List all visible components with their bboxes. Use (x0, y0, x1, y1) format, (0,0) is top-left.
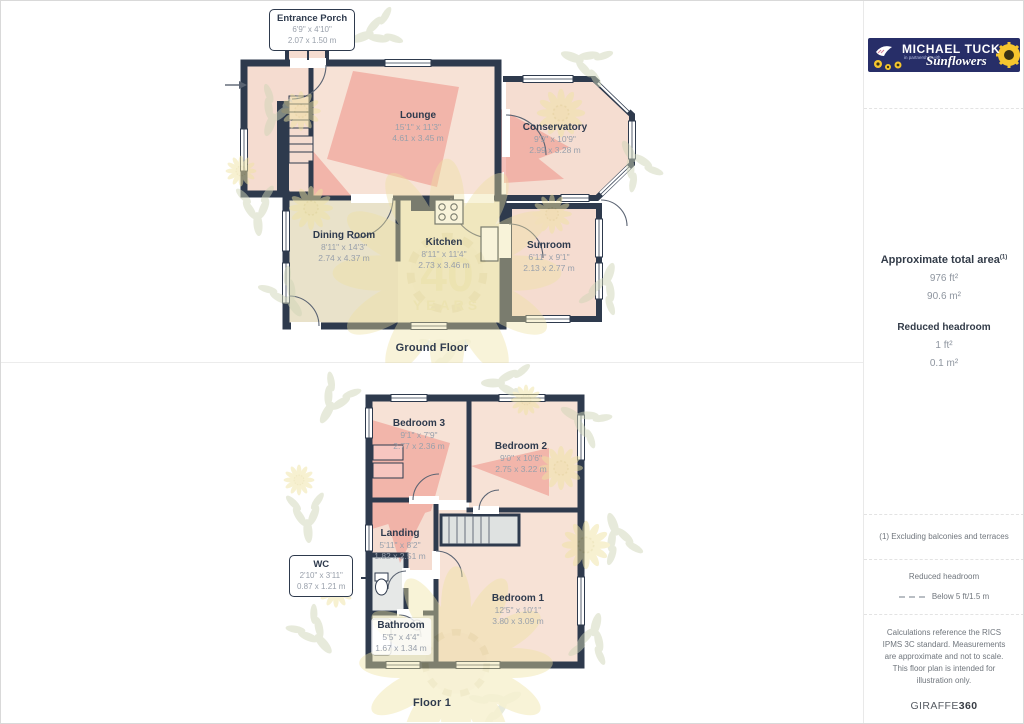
legend-section: Reduced headroom Below 5 ft/1.5 m (864, 560, 1024, 615)
entrance-porch-callout: Entrance Porch 6'9" x 4'10" 2.07 x 1.50 … (269, 9, 355, 51)
ground-floor-section: 40 YEARS Entrance Porch 6'9" x 4'10" 2.0… (1, 1, 863, 363)
room-label-sunroom: Sunroom 6'11" x 9'1" 2.13 x 2.77 m (523, 239, 575, 274)
callout-pointer (307, 51, 309, 60)
room-label-kitchen: Kitchen 8'11" x 11'4" 2.73 x 3.46 m (418, 236, 470, 271)
headroom-title: Reduced headroom (897, 322, 990, 333)
brand-logo: MICHAEL TUCK in partnership with Sunflow… (868, 38, 1020, 72)
first-floor-section: Bedroom 3 9'1" x 7'9" 2.77 x 2.36 m Bedr… (1, 363, 863, 722)
room-label-bedroom1: Bedroom 1 12'5" x 10'1" 3.80 x 3.09 m (492, 592, 544, 627)
area-value-ft: 976 ft² (930, 273, 958, 284)
giraffe360-credit: GIRAFFE360 (910, 700, 977, 712)
exclusions-note: (1) Excluding balconies and terraces (879, 531, 1008, 543)
dashed-line-swatch (899, 596, 925, 598)
room-label-dining-room: Dining Room 8'11" x 14'3" 2.74 x 4.37 m (313, 229, 375, 264)
dove-icon (876, 46, 892, 56)
legend-row: Below 5 ft/1.5 m (899, 591, 989, 603)
area-summary-section: Approximate total area(1) 976 ft² 90.6 m… (864, 109, 1024, 515)
wc-callout: WC 2'10" x 3'11" 0.87 x 1.21 m (289, 555, 353, 597)
plans-area: 40 YEARS Entrance Porch 6'9" x 4'10" 2.0… (1, 1, 863, 723)
legend-value: Below 5 ft/1.5 m (932, 591, 989, 603)
exclusions-note-section: (1) Excluding balconies and terraces (864, 515, 1024, 560)
brand-section: MICHAEL TUCK in partnership with Sunflow… (864, 1, 1024, 109)
ground-floor-label: Ground Floor (1, 342, 863, 354)
room-label-bedroom3: Bedroom 3 9'1" x 7'9" 2.77 x 2.36 m (393, 417, 445, 452)
headroom-value-m: 0.1 m² (930, 358, 958, 369)
floorplan-document: 40 YEARS Entrance Porch 6'9" x 4'10" 2.0… (0, 0, 1024, 724)
watermark-years: YEARS (413, 297, 481, 313)
callout-pointer (361, 577, 369, 579)
room-label-lounge: Lounge 15'1" x 11'3" 4.61 x 3.45 m (392, 109, 444, 144)
ground-floor-plan-svg: 40 YEARS (1, 1, 863, 363)
brand-partner-name: Sunflowers (926, 53, 987, 69)
room-label-bathroom: Bathroom 5'5" x 4'4" 1.67 x 1.34 m (371, 618, 431, 655)
sidebar: MICHAEL TUCK in partnership with Sunflow… (863, 1, 1024, 723)
headroom-value-ft: 1 ft² (935, 340, 952, 351)
disclaimer-section: Calculations reference the RICS IPMS 3C … (864, 615, 1024, 723)
room-label-landing: Landing 5'11" x 8'2" 1.82 x 2.51 m (374, 527, 426, 562)
first-floor-label: Floor 1 (1, 697, 863, 709)
room-label-bedroom2: Bedroom 2 9'0" x 10'6" 2.75 x 3.22 m (495, 440, 547, 475)
room-label-conservatory: Conservatory 9'9" x 10'9" 2.99 x 3.28 m (523, 121, 587, 156)
area-value-m: 90.6 m² (927, 291, 961, 302)
area-title: Approximate total area(1) (881, 254, 1008, 266)
stairwell (441, 515, 519, 545)
disclaimer-text: Calculations reference the RICS IPMS 3C … (877, 627, 1011, 687)
sunflower-small-icon (874, 60, 902, 70)
legend-title: Reduced headroom (909, 571, 979, 583)
